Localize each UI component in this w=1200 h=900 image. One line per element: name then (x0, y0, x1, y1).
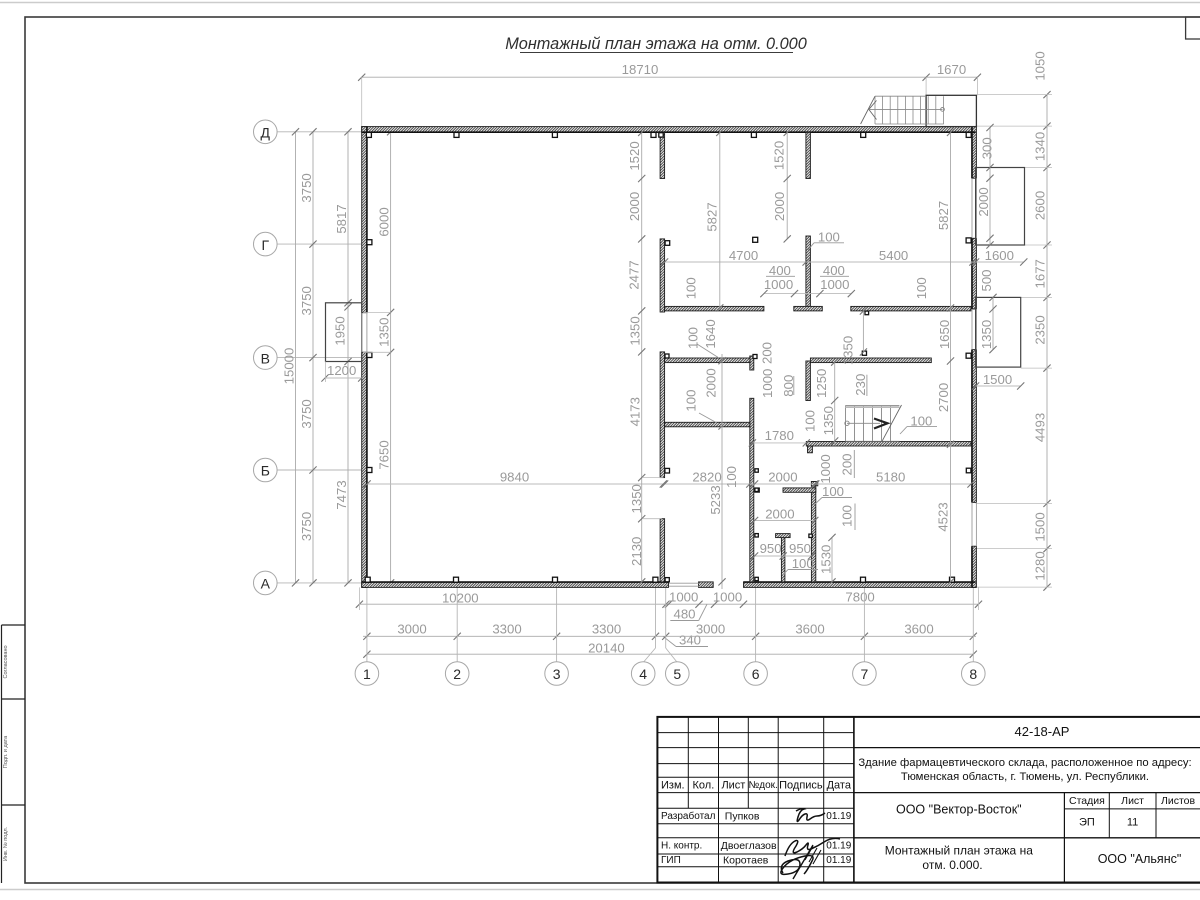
svg-text:7800: 7800 (845, 590, 874, 605)
svg-text:2000: 2000 (627, 192, 642, 221)
svg-text:3750: 3750 (299, 512, 314, 541)
svg-text:1950: 1950 (333, 316, 348, 345)
svg-text:4523: 4523 (936, 502, 951, 531)
svg-text:11: 11 (1127, 817, 1138, 829)
svg-text:5233: 5233 (708, 485, 723, 514)
svg-text:3600: 3600 (904, 622, 933, 637)
svg-text:400: 400 (769, 263, 791, 278)
svg-text:1000: 1000 (713, 590, 742, 605)
svg-text:2350: 2350 (1033, 315, 1048, 344)
svg-text:3: 3 (553, 666, 561, 682)
svg-text:01.19: 01.19 (826, 855, 851, 866)
svg-text:100: 100 (684, 277, 699, 299)
svg-text:3750: 3750 (299, 173, 314, 202)
svg-text:3000: 3000 (696, 622, 725, 637)
svg-text:2477: 2477 (627, 260, 642, 289)
svg-text:10200: 10200 (442, 591, 479, 606)
svg-text:А: А (261, 576, 271, 592)
svg-text:200: 200 (759, 342, 774, 364)
svg-text:20140: 20140 (588, 640, 625, 655)
svg-text:Лист: Лист (1121, 795, 1144, 807)
svg-text:Монтажный план этажа на: Монтажный план этажа на (885, 844, 1033, 858)
svg-text:1650: 1650 (937, 320, 952, 349)
svg-text:1000: 1000 (820, 277, 849, 292)
svg-text:Изм.: Изм. (661, 779, 685, 791)
svg-text:1: 1 (363, 666, 371, 682)
svg-text:Кол.: Кол. (693, 779, 715, 791)
svg-text:100: 100 (724, 466, 739, 488)
svg-text:2000: 2000 (772, 192, 787, 221)
svg-text:6: 6 (752, 666, 760, 682)
svg-text:3750: 3750 (299, 399, 314, 428)
svg-text:950: 950 (760, 541, 782, 556)
svg-text:3000: 3000 (397, 622, 426, 637)
svg-text:Двоеглазов: Двоеглазов (721, 840, 777, 852)
svg-text:Монтажный план этажа на отм. 0: Монтажный план этажа на отм. 0.000 (505, 35, 807, 53)
svg-text:300: 300 (980, 137, 995, 159)
svg-text:Подпись: Подпись (779, 779, 823, 791)
svg-text:1280: 1280 (1033, 551, 1048, 580)
svg-text:5400: 5400 (879, 248, 908, 263)
svg-text:2000: 2000 (765, 507, 794, 522)
svg-text:5: 5 (673, 666, 681, 682)
svg-text:1670: 1670 (937, 62, 966, 77)
svg-text:480: 480 (673, 607, 695, 622)
svg-text:1350: 1350 (841, 336, 856, 365)
svg-text:1000: 1000 (669, 590, 698, 605)
svg-text:1200: 1200 (327, 363, 356, 378)
svg-text:42-18-АР: 42-18-АР (1015, 724, 1070, 739)
svg-text:1350: 1350 (821, 406, 836, 435)
svg-text:200: 200 (840, 453, 855, 475)
svg-text:100: 100 (914, 277, 929, 299)
svg-text:3750: 3750 (299, 286, 314, 315)
svg-text:7: 7 (861, 666, 869, 682)
svg-text:Листов: Листов (1161, 795, 1196, 807)
svg-text:3300: 3300 (492, 622, 521, 637)
svg-text:5827: 5827 (936, 201, 951, 230)
svg-text:4493: 4493 (1033, 413, 1048, 442)
svg-text:отм. 0.000.: отм. 0.000. (922, 858, 982, 872)
svg-text:4: 4 (639, 666, 647, 682)
svg-text:1350: 1350 (628, 316, 643, 345)
svg-text:3300: 3300 (592, 622, 621, 637)
svg-text:Подп. и дата: Подп. и дата (3, 735, 9, 768)
svg-text:8: 8 (969, 666, 977, 682)
svg-text:1050: 1050 (1033, 51, 1048, 80)
svg-text:1640: 1640 (703, 319, 718, 348)
svg-text:1530: 1530 (819, 545, 834, 574)
svg-text:3600: 3600 (795, 622, 824, 637)
svg-text:В: В (261, 350, 270, 366)
svg-text:Стадия: Стадия (1069, 795, 1105, 807)
svg-text:Коротаев: Коротаев (723, 854, 769, 866)
svg-text:Пупков: Пупков (725, 810, 760, 822)
svg-text:Д: Д (261, 125, 271, 141)
svg-text:2600: 2600 (1033, 191, 1048, 220)
svg-text:Разработал: Разработал (661, 810, 716, 822)
svg-text:1000: 1000 (760, 369, 775, 398)
svg-text:100: 100 (818, 230, 840, 245)
svg-text:5180: 5180 (876, 470, 905, 485)
svg-text:7473: 7473 (334, 480, 349, 509)
svg-text:5827: 5827 (704, 202, 719, 231)
svg-text:Б: Б (261, 463, 270, 479)
svg-text:7650: 7650 (377, 440, 392, 469)
svg-text:15000: 15000 (282, 348, 297, 385)
svg-text:2130: 2130 (629, 537, 644, 566)
svg-text:ЭП: ЭП (1079, 817, 1095, 829)
svg-text:Г: Г (262, 237, 270, 253)
svg-text:1520: 1520 (627, 141, 642, 170)
svg-text:Согласовано: Согласовано (3, 645, 9, 678)
svg-text:ГИП: ГИП (661, 855, 681, 866)
svg-text:2000: 2000 (768, 470, 797, 485)
svg-text:1000: 1000 (764, 277, 793, 292)
svg-text:4700: 4700 (729, 248, 758, 263)
svg-text:2000: 2000 (976, 187, 991, 216)
svg-text:Тюменская область, г. Тюмень,: Тюменская область, г. Тюмень, ул. Респуб… (901, 771, 1149, 783)
svg-text:100: 100 (792, 556, 814, 571)
svg-text:1250: 1250 (814, 369, 829, 398)
svg-text:1780: 1780 (765, 428, 794, 443)
svg-text:100: 100 (910, 413, 932, 428)
svg-text:ООО "Альянс": ООО "Альянс" (1098, 852, 1182, 866)
svg-text:100: 100 (684, 390, 699, 412)
svg-text:№док.: №док. (749, 780, 778, 791)
svg-text:9840: 9840 (500, 470, 529, 485)
svg-text:230: 230 (853, 374, 868, 396)
svg-text:2820: 2820 (692, 470, 721, 485)
svg-text:1600: 1600 (985, 248, 1014, 263)
svg-text:1500: 1500 (1033, 512, 1048, 541)
svg-text:100: 100 (822, 484, 844, 499)
svg-text:Здание фармацевтического склад: Здание фармацевтического склада, располо… (858, 757, 1191, 769)
svg-text:Дата: Дата (827, 779, 852, 791)
svg-text:100: 100 (686, 327, 701, 349)
svg-text:5817: 5817 (334, 204, 349, 233)
svg-text:2: 2 (453, 666, 461, 682)
svg-text:1000: 1000 (818, 454, 833, 483)
svg-text:Н. контр.: Н. контр. (661, 840, 702, 851)
svg-text:01.19: 01.19 (826, 811, 851, 822)
svg-text:2000: 2000 (704, 368, 719, 397)
svg-text:18710: 18710 (622, 62, 659, 77)
svg-text:2700: 2700 (936, 383, 951, 412)
svg-text:950: 950 (789, 541, 811, 556)
svg-text:1520: 1520 (772, 141, 787, 170)
svg-text:1677: 1677 (1033, 259, 1048, 288)
svg-text:1500: 1500 (983, 372, 1012, 387)
svg-text:1340: 1340 (1033, 132, 1048, 161)
svg-text:ООО "Вектор-Восток": ООО "Вектор-Восток" (896, 803, 1022, 817)
svg-text:Инв. № подл.: Инв. № подл. (3, 826, 9, 861)
svg-text:1350: 1350 (629, 484, 644, 513)
svg-text:400: 400 (823, 263, 845, 278)
svg-text:6000: 6000 (377, 207, 392, 236)
svg-text:1350: 1350 (377, 318, 392, 347)
svg-text:100: 100 (803, 410, 818, 432)
svg-text:01.19: 01.19 (826, 840, 851, 851)
svg-text:4173: 4173 (628, 397, 643, 426)
svg-text:500: 500 (979, 269, 994, 291)
svg-text:Лист: Лист (721, 779, 745, 791)
svg-text:1350: 1350 (979, 320, 994, 349)
svg-text:100: 100 (840, 505, 855, 527)
